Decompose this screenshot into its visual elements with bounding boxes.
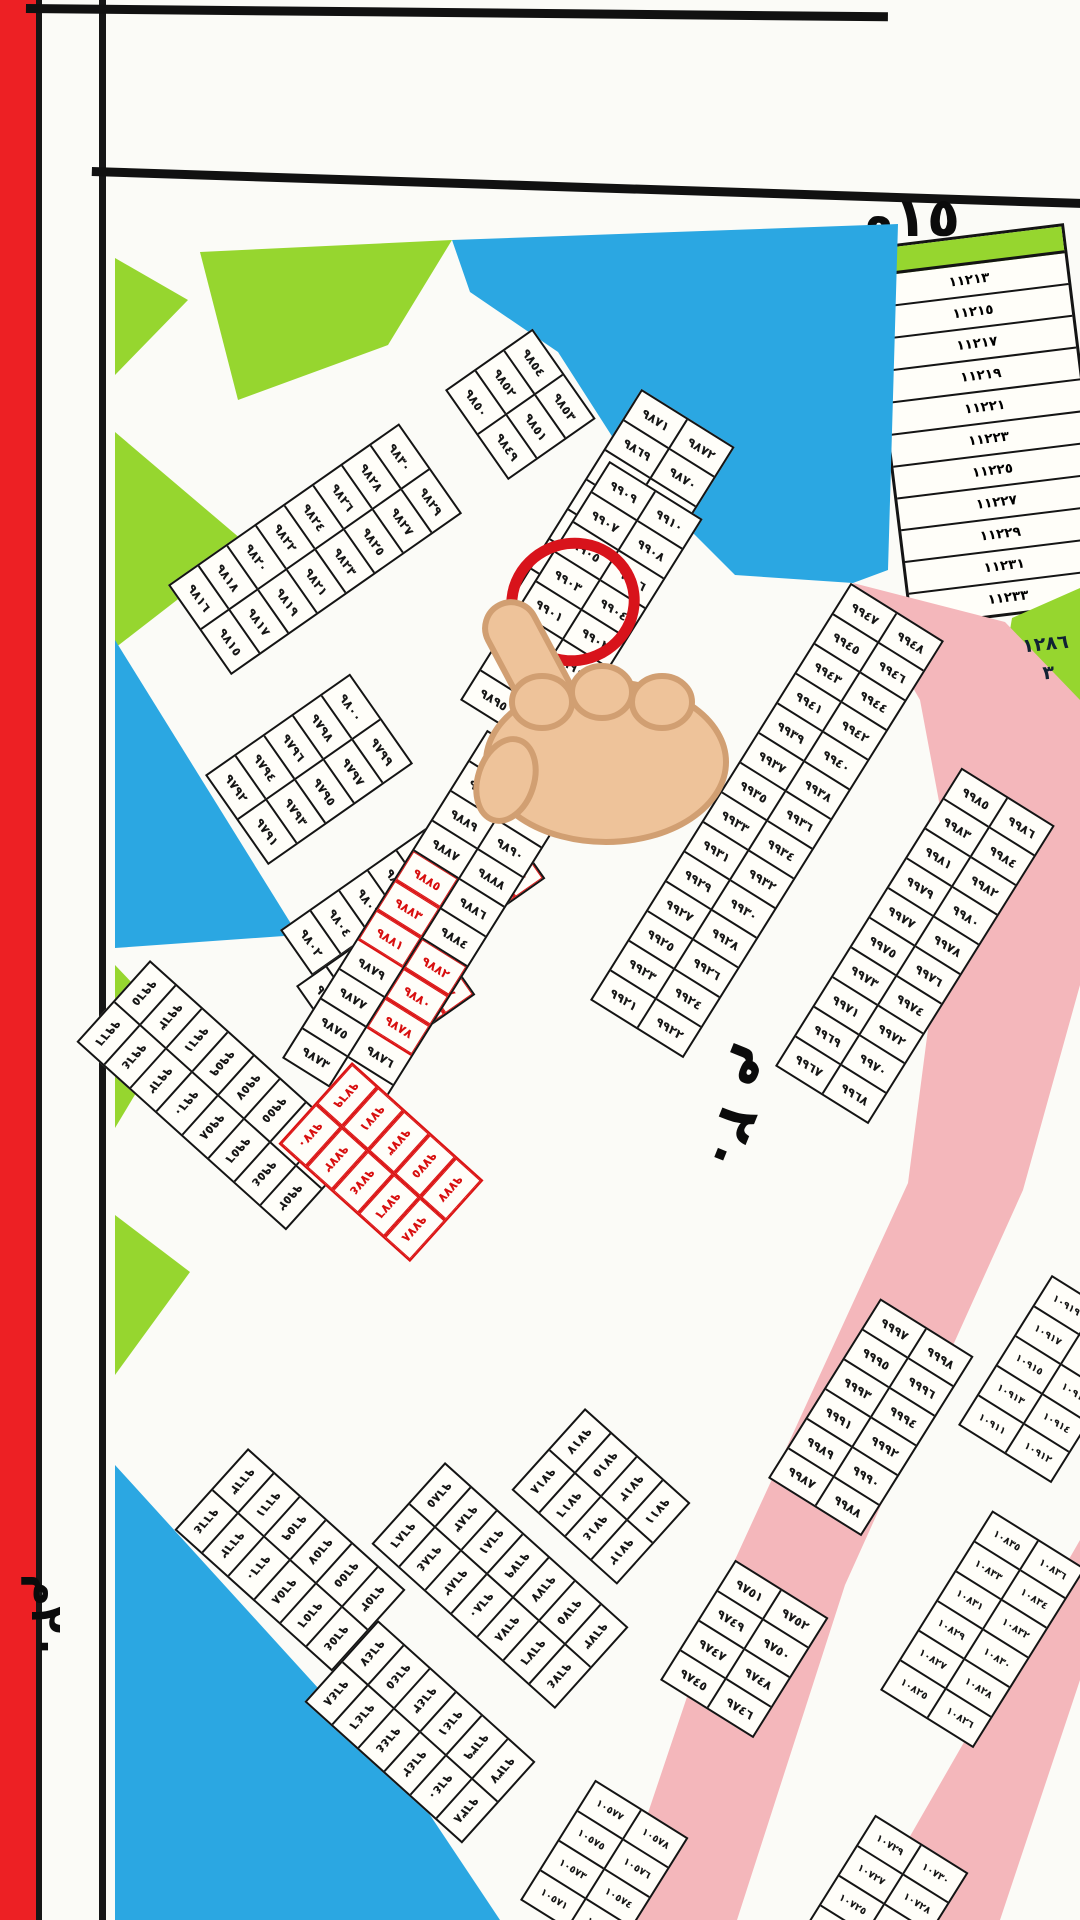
road-width-label-20m: ٢٠ م: [693, 1038, 797, 1189]
green-block-label: ١٢٨٦ ٣: [1009, 626, 1080, 690]
block-9769-red: ٩٧٦٩٩٧٧١٩٧٧٣٩٧٧٥٩٧٧٧٩٧٧٠٩٧٧٢٩٧٧٤٩٧٧٦٩٧٧٨: [278, 1062, 483, 1262]
street-width-label-20m-left: ٢٠م: [28, 1532, 72, 1702]
block-10911: ١٠٩١١١٠٩١٣١٠٩١٥١٠٩١٧١٠٩١٩١٠٩١٢١٠٩١٤١٠٩١٦…: [958, 1275, 1080, 1483]
top-border-line: [26, 4, 888, 21]
boundary-vertical-line: [99, 0, 106, 1920]
pointing-finger-icon: [410, 590, 750, 850]
cadastral-map: ٩٨١٦٩٨١٨٩٨٢٠٩٨٢٢٩٨٢٤٩٨٢٦٩٨٢٨٩٨٣٠٩٨١٥٩٨١٧…: [0, 0, 1080, 1920]
